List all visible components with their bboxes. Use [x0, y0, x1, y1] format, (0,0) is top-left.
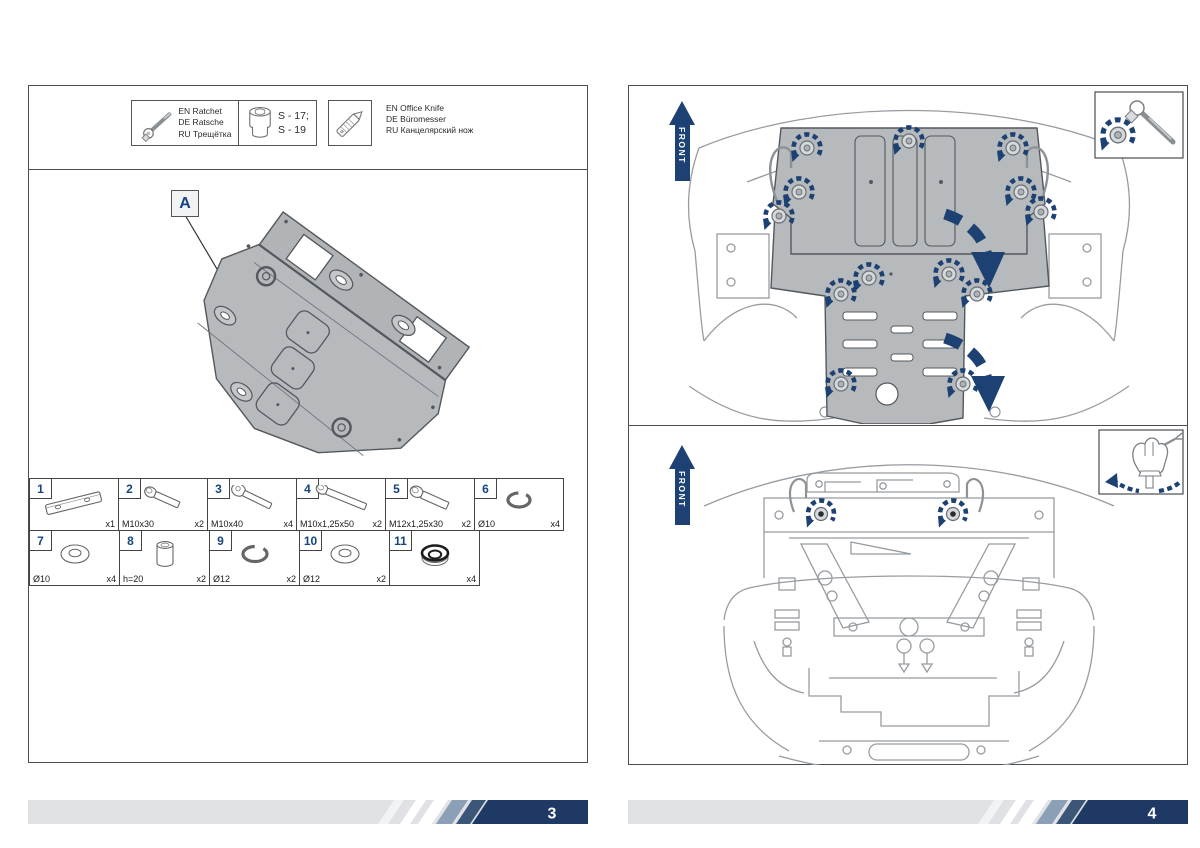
page-3: EN Ratchet DE Ratsche RU Трещётка S - 17… — [28, 85, 588, 763]
ratchet-label-ru: RU Трещётка — [178, 129, 231, 140]
tools-box-ratchet-socket: EN Ratchet DE Ratsche RU Трещётка S - 17… — [131, 100, 317, 146]
socket-size-17: S - 17; — [278, 109, 309, 123]
part-size: M10x1,25x50 — [300, 519, 354, 529]
part-qty: x2 — [461, 519, 471, 529]
part-cell-8: 8 h=20 x2 — [119, 530, 210, 586]
car-underbody-lines — [704, 465, 1114, 765]
knife-label-de: DE Büromesser — [386, 114, 473, 125]
part-icon-csk-bolt — [220, 485, 284, 517]
part-cell-11: 11 x4 — [389, 530, 480, 586]
front-direction-arrow: FRONT — [669, 101, 695, 181]
part-qty: x4 — [283, 519, 293, 529]
part-qty: x2 — [376, 574, 386, 584]
part-icon-hex-bolt — [398, 485, 462, 517]
office-knife-icon — [331, 103, 369, 143]
knife-label-en: EN Office Knife — [386, 103, 473, 114]
page-number-right: 4 — [1148, 806, 1157, 823]
part-qty: x4 — [466, 574, 476, 584]
bolt-tighten-markers — [806, 501, 966, 528]
hand-tighten-icon-box — [1099, 430, 1184, 494]
part-qty: x2 — [194, 519, 204, 529]
part-qty: x2 — [372, 519, 382, 529]
ratchet-labels: EN Ratchet DE Ratsche RU Трещётка — [178, 106, 231, 139]
part-cell-3: 3 M10x40 x4 — [207, 478, 297, 531]
part-qty: x4 — [550, 519, 560, 529]
socket-icon — [246, 104, 274, 142]
page-number-left: 3 — [548, 806, 557, 823]
part-cell-10: 10 Ø12 x2 — [299, 530, 390, 586]
part-size: Ø12 — [303, 574, 320, 584]
front-arrow-shaft: FRONT — [675, 469, 690, 525]
knife-label-ru: RU Канцелярский нож — [386, 125, 473, 136]
footer-right: 4 — [628, 799, 1188, 825]
part-qty: x1 — [105, 519, 115, 529]
ratchet-label-en: EN Ratchet — [178, 106, 231, 117]
ratchet-step-icon-box — [1095, 92, 1183, 158]
front-arrow-shaft: FRONT — [675, 125, 690, 181]
part-cell-7: 7 Ø10 x4 — [29, 530, 120, 586]
manual-spread: { "meta": { "colors": { "navy_accent": "… — [0, 0, 1200, 848]
skid-plate-drawing — [109, 181, 529, 473]
part-size: M10x30 — [122, 519, 154, 529]
part-cell-2: 2 M10x30 x2 — [118, 478, 208, 531]
tools-box-knife — [328, 100, 372, 146]
ratchet-tool-icon — [138, 103, 178, 143]
part-size: M12x1,25x30 — [389, 519, 443, 529]
part-size: Ø10 — [33, 574, 50, 584]
front-direction-arrow: FRONT — [669, 445, 695, 525]
part-cell-1: 1 x1 — [29, 478, 119, 531]
part-icon-spacer — [133, 537, 197, 571]
part-icon-hex-bolt — [131, 485, 195, 517]
part-icon-spring-washer — [223, 537, 287, 571]
knife-labels: EN Office Knife DE Büromesser RU Канцеля… — [386, 103, 473, 136]
tools-separator — [29, 169, 587, 170]
parts-table-row-2: 7 Ø10 x4 8 h=20 x2 9 Ø12 x — [29, 530, 479, 586]
front-arrow-label: FRONT — [677, 471, 687, 525]
socket-size-19: S - 19 — [278, 123, 309, 137]
part-icon-spring-washer — [487, 485, 551, 515]
part-cell-9: 9 Ø12 x2 — [209, 530, 300, 586]
part-qty: x2 — [286, 574, 296, 584]
front-arrow-label: FRONT — [677, 127, 687, 181]
part-cell-4: 4 M10x1,25x50 x2 — [296, 478, 386, 531]
skid-plate — [152, 199, 480, 473]
part-size: M10x40 — [211, 519, 243, 529]
page-4: FRONT FRONT — [628, 85, 1188, 765]
panel-hand-tighten — [629, 426, 1187, 765]
tool-cell-ratchet: EN Ratchet DE Ratsche RU Трещётка — [132, 101, 239, 145]
tool-cell-socket: S - 17; S - 19 — [239, 101, 316, 145]
ratchet-label-de: DE Ratsche — [178, 117, 231, 128]
part-size: Ø12 — [213, 574, 230, 584]
part-qty: x2 — [196, 574, 206, 584]
part-qty: x4 — [106, 574, 116, 584]
callout-a-label: A — [179, 195, 191, 213]
front-arrow-head — [669, 101, 695, 125]
part-icon-flat-washer — [313, 537, 377, 571]
part-icon-bracket — [42, 485, 106, 517]
panel-remove-plates — [629, 86, 1187, 424]
part-cell-6: 6 Ø10 x4 — [474, 478, 564, 531]
part-size: Ø10 — [478, 519, 495, 529]
socket-sizes: S - 17; S - 19 — [278, 109, 309, 137]
footer-left: 3 — [28, 799, 588, 825]
part-cell-5: 5 M12x1,25x30 x2 — [385, 478, 475, 531]
part-icon-flat-washer — [43, 537, 107, 571]
part-size: h=20 — [123, 574, 143, 584]
part-icon-cup-washer — [403, 537, 467, 571]
callout-a-box: A — [171, 190, 199, 217]
parts-table-row-1: 1 x1 2 M10x30 — [29, 478, 563, 531]
front-arrow-head — [669, 445, 695, 469]
part-icon-hex-bolt-long — [306, 485, 376, 517]
